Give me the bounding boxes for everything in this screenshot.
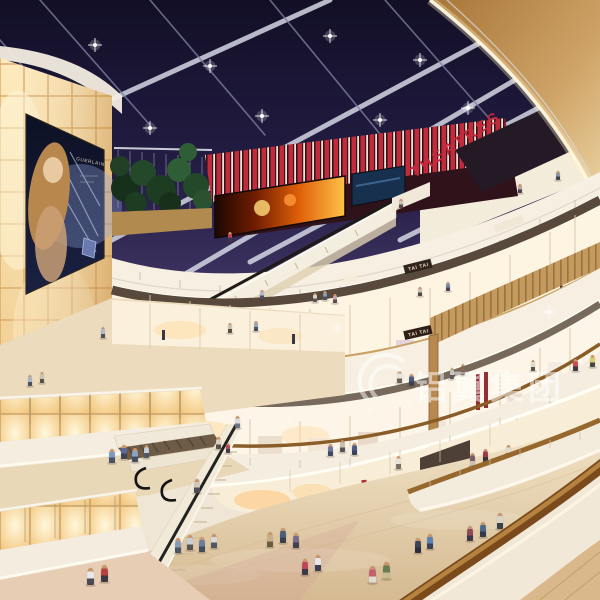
watermark-logo bbox=[360, 355, 404, 400]
watermark: 铝翼集团 bbox=[360, 355, 566, 406]
watermark-text: 铝翼集团 bbox=[414, 369, 566, 406]
mall-atrium-rendering: GUERLAIN THEATRES bbox=[0, 0, 600, 600]
foreground-rail: 铝翼集团 bbox=[0, 0, 600, 600]
near-balcony-close bbox=[398, 461, 600, 600]
